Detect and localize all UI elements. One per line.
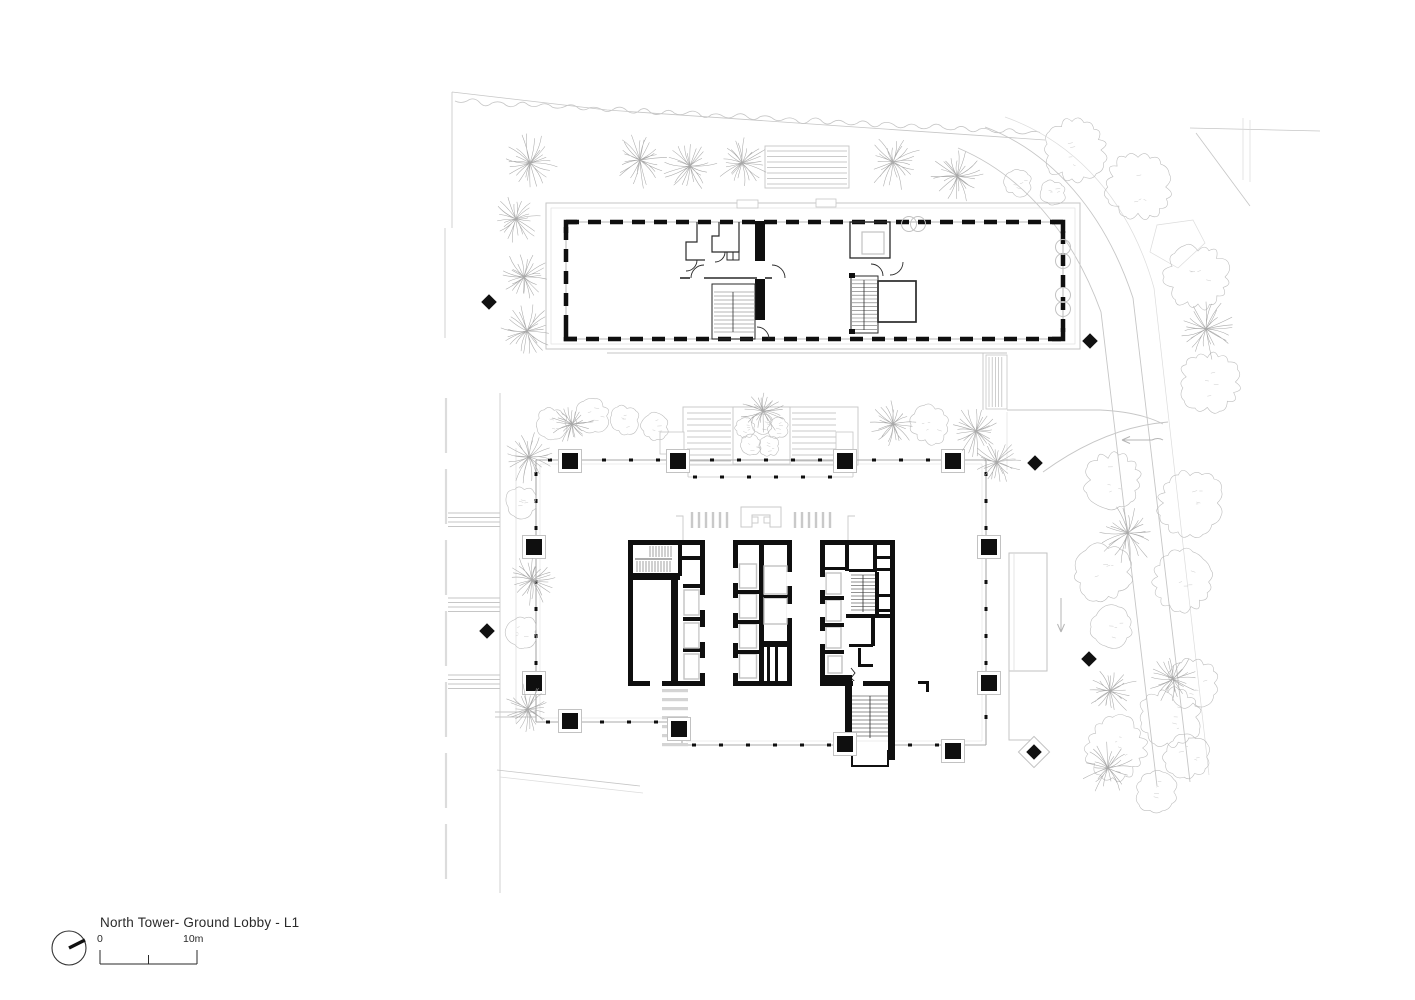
landscape-layer — [445, 92, 1320, 893]
structural-column — [978, 536, 1001, 559]
survey-marker — [1027, 455, 1043, 471]
survey-marker — [1081, 651, 1097, 667]
structural-column — [559, 450, 582, 473]
podium-building — [566, 217, 1071, 340]
deci-tree — [1040, 180, 1065, 205]
palm-tree — [620, 135, 667, 189]
structural-column — [668, 718, 691, 741]
deci-tree — [1152, 548, 1213, 613]
deci-tree — [1181, 352, 1241, 413]
shrub — [536, 407, 567, 439]
structural-column — [523, 672, 546, 695]
survey-marker — [479, 623, 495, 639]
structural-column — [942, 740, 965, 763]
deci-tree — [1004, 169, 1032, 197]
palm-tree — [874, 139, 920, 190]
structural-column — [667, 450, 690, 473]
palm-tree — [501, 305, 549, 354]
survey-marker — [481, 294, 497, 310]
deci-tree — [1084, 452, 1142, 510]
palm-tree — [1083, 742, 1132, 792]
survey-marker — [1082, 333, 1098, 349]
shrub — [506, 487, 536, 519]
palm-tree — [720, 137, 766, 186]
palm-tree — [503, 255, 547, 299]
palm-tree — [664, 144, 717, 189]
survey-marker — [1018, 736, 1049, 767]
shrub — [575, 398, 609, 433]
palm-tree — [870, 401, 916, 446]
palm-tree — [507, 432, 552, 483]
structural-column — [559, 710, 582, 733]
deci-tree — [1163, 244, 1230, 310]
deci-tree — [1104, 153, 1171, 219]
deci-tree — [1045, 118, 1107, 183]
drawing-sheet: North Tower- Ground Lobby - L1 0 10m — [0, 0, 1415, 1000]
core-middle — [733, 540, 793, 686]
deci-tree — [1168, 658, 1218, 708]
deci-tree — [1163, 734, 1210, 779]
deci-tree — [1157, 470, 1222, 537]
shrub — [910, 404, 949, 445]
palm-tree — [1150, 658, 1195, 701]
palm-tree — [497, 197, 540, 243]
site-plan — [0, 0, 1415, 1000]
core-left — [628, 540, 706, 687]
shrub — [610, 405, 639, 435]
structural-column — [978, 672, 1001, 695]
deci-tree — [1136, 770, 1177, 813]
structural-column — [834, 450, 857, 473]
palm-tree — [931, 151, 984, 202]
palm-tree — [512, 558, 555, 606]
palm-tree — [552, 407, 594, 441]
palm-tree — [506, 134, 557, 188]
deci-tree — [1090, 605, 1132, 649]
deci-tree — [1074, 543, 1132, 602]
structural-column — [523, 536, 546, 559]
palm-tree — [1090, 671, 1137, 710]
structural-column — [834, 733, 857, 756]
structural-column — [942, 450, 965, 473]
shrub — [505, 617, 536, 648]
palm-tree — [1182, 302, 1233, 360]
palm-tree — [977, 443, 1021, 481]
palm-tree — [1100, 507, 1151, 563]
